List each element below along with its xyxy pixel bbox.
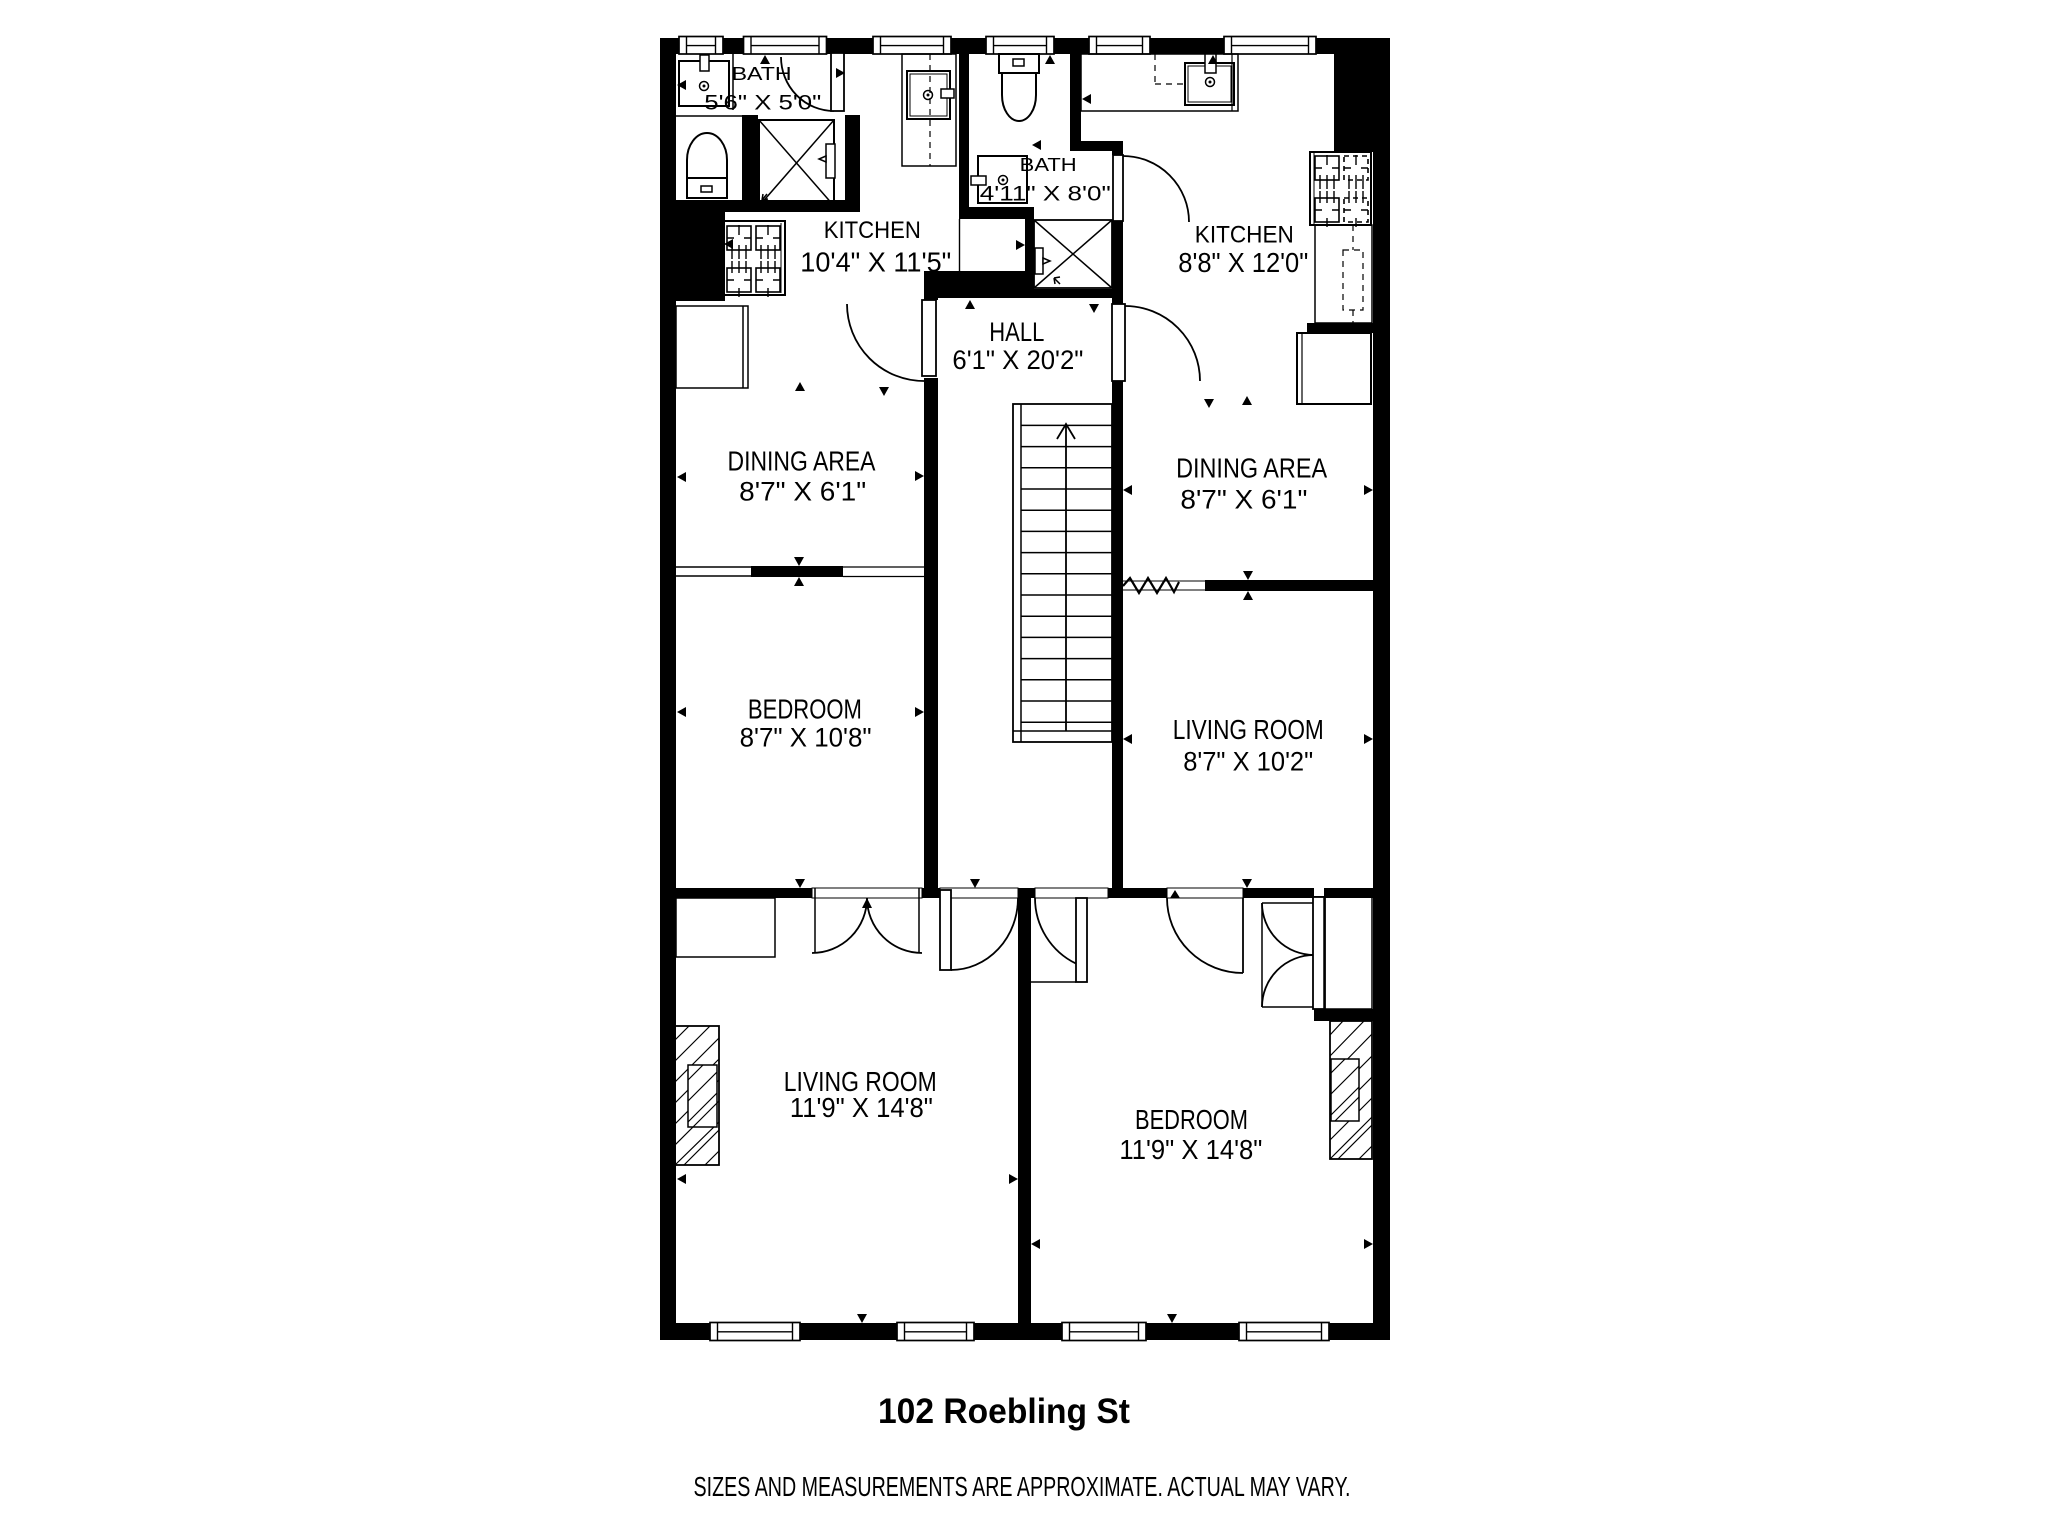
svg-text:DINING AREA: DINING AREA <box>1176 452 1328 483</box>
svg-text:8'7" X 6'1": 8'7" X 6'1" <box>1180 485 1307 515</box>
svg-text:LIVING ROOM: LIVING ROOM <box>1173 714 1324 745</box>
svg-text:KITCHEN: KITCHEN <box>824 217 921 244</box>
svg-text:11'9" X 14'8": 11'9" X 14'8" <box>790 1092 933 1123</box>
svg-text:102 Roebling St: 102 Roebling St <box>878 1391 1130 1431</box>
svg-text:SIZES AND MEASUREMENTS ARE APP: SIZES AND MEASUREMENTS ARE APPROXIMATE. … <box>694 1471 1351 1502</box>
svg-text:11'9" X 14'8": 11'9" X 14'8" <box>1119 1134 1262 1165</box>
svg-text:BATH: BATH <box>732 63 792 84</box>
svg-text:4'11" X 8'0": 4'11" X 8'0" <box>980 183 1111 206</box>
svg-text:8'7" X 6'1": 8'7" X 6'1" <box>739 476 866 506</box>
svg-text:BATH: BATH <box>1020 154 1077 175</box>
svg-text:8'7" X 10'8": 8'7" X 10'8" <box>740 722 872 752</box>
svg-text:KITCHEN: KITCHEN <box>1195 222 1294 249</box>
svg-text:6'1" X 20'2": 6'1" X 20'2" <box>952 345 1083 375</box>
svg-text:10'4" X 11'5": 10'4" X 11'5" <box>800 247 951 278</box>
svg-text:BEDROOM: BEDROOM <box>748 694 862 725</box>
svg-text:HALL: HALL <box>989 317 1044 347</box>
svg-text:BEDROOM: BEDROOM <box>1135 1104 1248 1135</box>
svg-text:DINING AREA: DINING AREA <box>728 446 877 477</box>
svg-text:5'6" X 5'0": 5'6" X 5'0" <box>704 92 821 115</box>
svg-text:8'7" X 10'2": 8'7" X 10'2" <box>1183 747 1313 777</box>
svg-text:8'8" X 12'0": 8'8" X 12'0" <box>1178 247 1308 278</box>
